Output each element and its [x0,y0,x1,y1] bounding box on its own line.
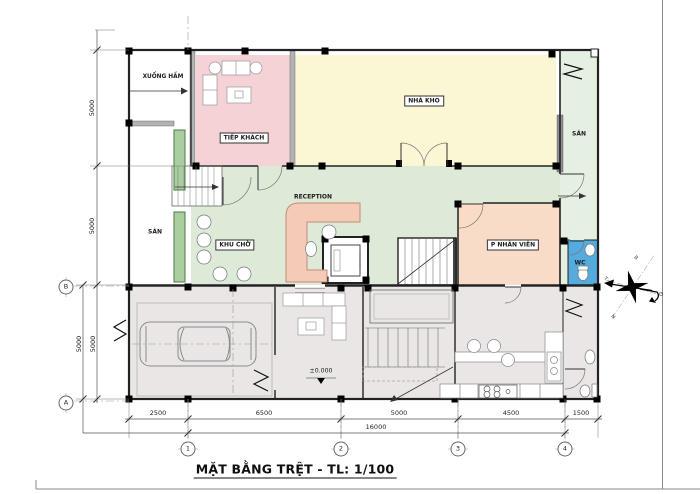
compass-icon [604,254,661,318]
floor-plan-sheet: XUỐNG HẦM TIẾP KHÁCH NHÀ KHO SÂN SÂN REC… [0,0,700,494]
grid-bubble-1: 1 [181,442,196,457]
dim-5000: 5000 [391,409,408,417]
dim-6500: 6500 [256,409,273,417]
dim-1500: 1500 [573,409,590,417]
floor-plan-drawing [0,0,700,494]
room-label-xuong-ham: XUỐNG HẦM [143,74,184,80]
room-label-nha-kho: NHÀ KHO [404,96,444,107]
room-label-reception: RECEPTION [294,194,332,201]
dim-4500: 4500 [503,409,520,417]
room-label-p-nhan-vien: P NHÂN VIÊN [487,240,539,251]
level-marker-label: ±0.000 [310,368,333,375]
compass-label-e: Đ [657,292,663,296]
dim-2500: 2500 [150,409,167,417]
room-label-san-left: SÂN [148,229,162,236]
room-label-tiep-khach: TIẾP KHÁCH [220,133,269,144]
dim-16000: 16000 [366,423,387,431]
grid-bubble-A: A [59,396,74,411]
dim-v-5000-2: 5000 [88,218,96,235]
dim-v-5000-1: 5000 [88,100,96,117]
grid-bubble-3: 3 [451,442,466,457]
grid-bubble-B: B [59,280,74,295]
dim-v-5000-4: 5000 [89,336,97,353]
dim-v-5000-3: 5000 [75,336,83,353]
room-label-wc: WC [574,260,585,267]
room-label-san-right: SÂN [572,131,586,138]
grid-bubble-2: 2 [334,442,349,457]
drawing-title: MẶT BẰNG TRỆT - TL: 1/100 [194,462,397,479]
room-label-khu-cho: KHU CHỜ [215,240,254,251]
elevator [331,245,360,276]
grid-bubble-4: 4 [558,442,573,457]
